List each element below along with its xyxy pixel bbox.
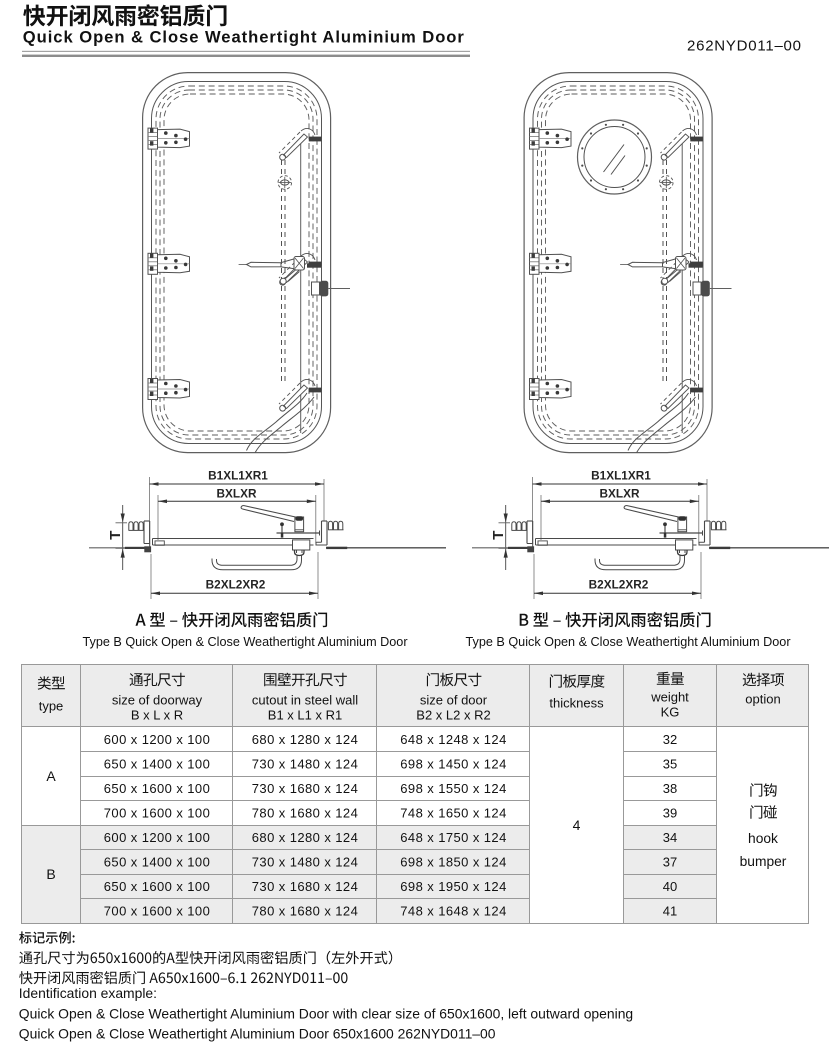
svg-text:648 x 1248 x 124: 648 x 1248 x 124 [400,732,506,747]
svg-text:T: T [107,531,124,540]
svg-text:Quick Open & Close Weathertigh: Quick Open & Close Weathertight Aluminiu… [19,1006,633,1022]
svg-text:B1 x L1 x R1: B1 x L1 x R1 [268,708,342,723]
svg-text:Quick Open & Close Weathertigh: Quick Open & Close Weathertight Aluminiu… [23,27,465,46]
svg-text:680 x 1280 x 124: 680 x 1280 x 124 [252,830,358,845]
svg-text:size of doorway: size of doorway [112,693,203,708]
svg-text:34: 34 [663,830,677,845]
svg-text:A: A [46,768,56,784]
svg-text:700 x 1600 x 100: 700 x 1600 x 100 [104,805,210,820]
svg-text:KG: KG [661,705,680,720]
svg-text:32: 32 [663,732,677,747]
svg-text:Quick Open & Close Weathertigh: Quick Open & Close Weathertight Aluminiu… [19,1025,496,1041]
svg-text:698 x 1450 x 124: 698 x 1450 x 124 [400,756,506,771]
svg-text:Type B Quick Open & Close Weat: Type B Quick Open & Close Weathertight A… [465,635,790,649]
svg-text:size of door: size of door [420,693,488,708]
svg-text:680 x 1280 x 124: 680 x 1280 x 124 [252,732,358,747]
svg-text:650 x 1400 x 100: 650 x 1400 x 100 [104,854,210,869]
svg-text:700 x 1600 x 100: 700 x 1600 x 100 [104,903,210,918]
svg-text:35: 35 [663,756,677,771]
svg-text:BXLXR: BXLXR [217,486,257,500]
svg-text:41: 41 [663,903,677,918]
svg-text:262NYD011–00: 262NYD011–00 [687,37,802,54]
svg-text:Identification example:: Identification example: [19,985,157,1001]
svg-text:B1XL1XR1: B1XL1XR1 [591,468,651,482]
svg-text:780 x 1680 x 124: 780 x 1680 x 124 [252,805,358,820]
svg-text:38: 38 [663,781,677,796]
svg-text:cutout in steel wall: cutout in steel wall [252,693,358,708]
svg-text:37: 37 [663,854,677,869]
svg-text:748 x 1650 x 124: 748 x 1650 x 124 [400,805,506,820]
svg-text:4: 4 [573,817,581,833]
svg-text:730 x 1680 x 124: 730 x 1680 x 124 [252,879,358,894]
svg-text:B x L x R: B x L x R [131,708,183,723]
svg-text:BXLXR: BXLXR [600,486,640,500]
svg-text:B1XL1XR1: B1XL1XR1 [208,468,268,482]
svg-text:B: B [46,866,55,882]
svg-text:600 x 1200 x 100: 600 x 1200 x 100 [104,732,210,747]
svg-text:780 x 1680 x 124: 780 x 1680 x 124 [252,903,358,918]
svg-text:650 x 1400 x 100: 650 x 1400 x 100 [104,756,210,771]
svg-text:730 x 1480 x 124: 730 x 1480 x 124 [252,854,358,869]
svg-text:730 x 1480 x 124: 730 x 1480 x 124 [252,756,358,771]
svg-text:Type B Quick Open & Close Weat: Type B Quick Open & Close Weathertight A… [82,635,407,649]
svg-text:698 x 1550 x 124: 698 x 1550 x 124 [400,781,506,796]
svg-text:B2 x L2 x R2: B2 x L2 x R2 [416,708,490,723]
svg-text:thickness: thickness [549,696,604,711]
svg-text:730 x 1680 x 124: 730 x 1680 x 124 [252,781,358,796]
svg-text:T: T [490,531,507,540]
svg-text:748 x 1648 x 124: 748 x 1648 x 124 [400,903,506,918]
svg-text:39: 39 [663,805,677,820]
svg-text:600 x 1200 x 100: 600 x 1200 x 100 [104,830,210,845]
svg-text:650 x 1600 x 100: 650 x 1600 x 100 [104,879,210,894]
svg-text:option: option [745,692,780,707]
svg-text:B2XL2XR2: B2XL2XR2 [206,578,266,592]
svg-text:648 x 1750 x 124: 648 x 1750 x 124 [400,830,506,845]
svg-text:698 x 1950 x 124: 698 x 1950 x 124 [400,879,506,894]
svg-text:bumper: bumper [740,854,787,869]
svg-text:698 x 1850 x 124: 698 x 1850 x 124 [400,854,506,869]
svg-text:B2XL2XR2: B2XL2XR2 [589,578,649,592]
svg-text:hook: hook [748,831,778,846]
svg-text:weight: weight [650,690,689,705]
svg-text:type: type [39,699,64,714]
svg-text:650 x 1600 x 100: 650 x 1600 x 100 [104,781,210,796]
svg-text:40: 40 [663,879,677,894]
